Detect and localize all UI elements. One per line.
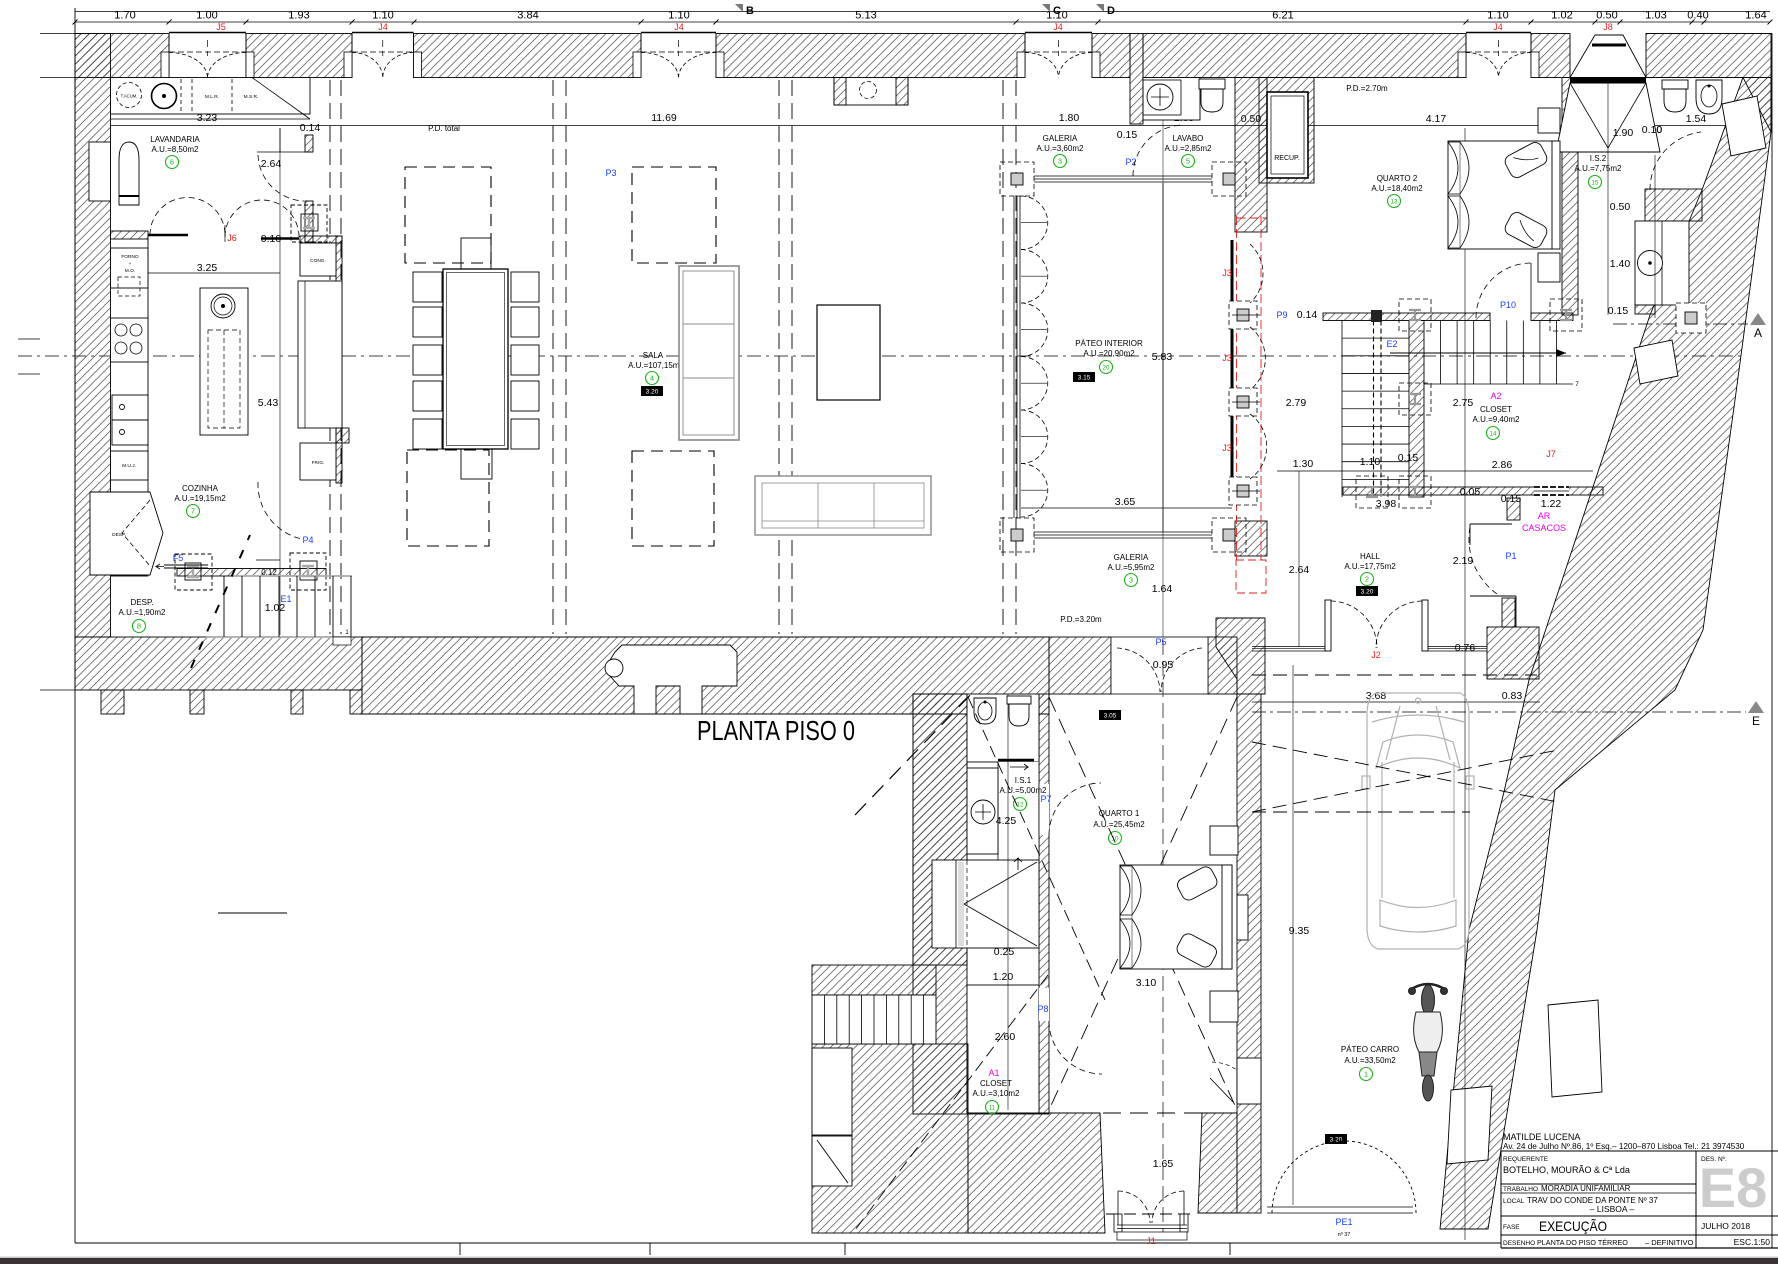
svg-text:HALL: HALL: [1360, 552, 1381, 561]
svg-text:C: C: [1053, 5, 1061, 17]
svg-text:ESC.1:50: ESC.1:50: [1734, 1237, 1771, 1247]
svg-text:M.U.J.: M.U.J.: [122, 463, 136, 469]
svg-text:M.S.R.: M.S.R.: [244, 94, 259, 100]
svg-text:3.20: 3.20: [646, 389, 659, 396]
svg-text:3.20: 3.20: [1330, 1137, 1343, 1144]
svg-text:5.13: 5.13: [855, 10, 876, 22]
svg-text:T.ACUM.: T.ACUM.: [121, 94, 138, 99]
svg-text:CLOSET: CLOSET: [980, 1079, 1012, 1088]
svg-text:I.S.1: I.S.1: [1015, 776, 1032, 785]
svg-text:3: 3: [1058, 156, 1062, 165]
svg-text:2.75: 2.75: [1453, 397, 1474, 409]
svg-text:0.50: 0.50: [1596, 10, 1617, 22]
svg-text:P5: P5: [1155, 637, 1166, 647]
svg-text:MORADIA UNIFAMILIAR: MORADIA UNIFAMILIAR: [1541, 1184, 1631, 1193]
svg-text:1.10: 1.10: [668, 10, 689, 22]
svg-text:CLOSET: CLOSET: [1480, 405, 1512, 414]
svg-text:J2: J2: [1371, 650, 1381, 660]
svg-text:+: +: [129, 262, 132, 267]
svg-text:LAVANDARIA: LAVANDARIA: [150, 135, 200, 144]
svg-text:PLANTA DO PISO TÉRREO: PLANTA DO PISO TÉRREO: [1537, 1238, 1628, 1247]
svg-text:2.79: 2.79: [1286, 397, 1307, 409]
svg-text:0.15: 0.15: [1398, 452, 1419, 464]
svg-text:A.U.=17,75m2: A.U.=17,75m2: [1344, 562, 1396, 571]
svg-text:0.15: 0.15: [1608, 305, 1629, 317]
svg-text:PE1: PE1: [1335, 1217, 1352, 1227]
svg-text:0.14: 0.14: [1297, 309, 1318, 321]
svg-text:COZINHA: COZINHA: [182, 484, 219, 493]
svg-text:FRIG.: FRIG.: [312, 460, 325, 466]
svg-text:3.15: 3.15: [1078, 375, 1091, 382]
svg-text:6.21: 6.21: [1272, 10, 1293, 22]
svg-text:– DEFINITIVO: – DEFINITIVO: [1645, 1238, 1694, 1247]
svg-text:2.19: 2.19: [1453, 555, 1474, 567]
svg-text:J8: J8: [1603, 22, 1613, 32]
svg-text:P4: P4: [302, 535, 313, 545]
svg-text:QUARTO 1: QUARTO 1: [1099, 809, 1140, 818]
svg-text:P8: P8: [1037, 1004, 1048, 1014]
svg-text:14: 14: [1490, 430, 1497, 437]
svg-text:3.05: 3.05: [1104, 713, 1117, 720]
svg-text:A.U.=7,75m2: A.U.=7,75m2: [1575, 164, 1622, 173]
svg-text:BOTELHO, MOURÃO & Cª Lda: BOTELHO, MOURÃO & Cª Lda: [1503, 1165, 1630, 1175]
svg-text:1.30: 1.30: [1293, 458, 1314, 470]
svg-text:3.98: 3.98: [1376, 498, 1397, 510]
svg-text:1.40: 1.40: [1610, 258, 1631, 270]
svg-text:20: 20: [1103, 364, 1110, 371]
svg-text:CASACOS: CASACOS: [1522, 523, 1566, 533]
svg-text:2.64: 2.64: [261, 158, 282, 170]
svg-text:15: 15: [1592, 179, 1599, 186]
svg-text:LOCAL: LOCAL: [1503, 1198, 1525, 1205]
svg-text:1.54: 1.54: [1686, 113, 1707, 125]
svg-text:J4: J4: [1053, 22, 1063, 32]
svg-text:MATILDE LUCENA: MATILDE LUCENA: [1503, 1132, 1580, 1142]
svg-text:DESP.: DESP.: [112, 532, 126, 538]
svg-text:E2: E2: [1386, 339, 1397, 349]
svg-text:2.64: 2.64: [1289, 564, 1310, 576]
svg-text:Av. 24 de Julho Nº.86, 1º Esq.: Av. 24 de Julho Nº.86, 1º Esq.– 1200–870…: [1503, 1142, 1745, 1151]
svg-text:1.10: 1.10: [1360, 456, 1381, 468]
svg-text:1.03: 1.03: [1645, 10, 1666, 22]
svg-text:SALA: SALA: [643, 351, 664, 360]
svg-text:E8: E8: [1699, 1156, 1768, 1219]
svg-text:1.02: 1.02: [265, 602, 286, 614]
svg-text:EXECUÇÃO: EXECUÇÃO: [1539, 1218, 1607, 1234]
svg-text:A.U.=18,40m2: A.U.=18,40m2: [1371, 184, 1423, 193]
svg-text:GALERIA: GALERIA: [1043, 134, 1078, 143]
svg-text:P1: P1: [1505, 551, 1516, 561]
svg-text:CONG.: CONG.: [310, 258, 326, 264]
svg-text:A: A: [1754, 326, 1762, 340]
svg-text:nº 37: nº 37: [1338, 1231, 1351, 1238]
svg-text:5: 5: [1186, 156, 1190, 165]
svg-text:1.90: 1.90: [1613, 127, 1634, 139]
svg-text:A.U.=107,15m2: A.U.=107,15m2: [628, 361, 684, 370]
svg-text:0.15: 0.15: [1501, 493, 1522, 505]
svg-text:1.80: 1.80: [1059, 112, 1080, 124]
svg-text:3.84: 3.84: [517, 10, 538, 22]
svg-text:P10: P10: [1500, 300, 1516, 310]
svg-text:A.U.=8,50m2: A.U.=8,50m2: [152, 145, 199, 154]
svg-text:0.14: 0.14: [300, 122, 321, 134]
svg-text:7: 7: [191, 506, 195, 515]
svg-text:A.U.=33,50m2: A.U.=33,50m2: [1344, 1056, 1396, 1065]
svg-text:1.02: 1.02: [1551, 10, 1572, 22]
svg-text:2: 2: [1365, 574, 1369, 583]
svg-text:P.D.=2.70m: P.D.=2.70m: [1346, 84, 1388, 93]
svg-text:A.U.=1,90m2: A.U.=1,90m2: [119, 608, 166, 617]
svg-text:F5: F5: [173, 553, 184, 563]
svg-text:E: E: [1752, 714, 1760, 728]
svg-text:A.U.=3,10m2: A.U.=3,10m2: [973, 1089, 1020, 1098]
svg-text:1: 1: [1364, 1069, 1368, 1078]
svg-text:5.83: 5.83: [1152, 351, 1173, 363]
svg-text:0.05: 0.05: [1460, 486, 1481, 498]
svg-text:DESP.: DESP.: [131, 598, 154, 607]
svg-text:9.35: 9.35: [1289, 925, 1310, 937]
svg-text:A.U.=25,45m2: A.U.=25,45m2: [1093, 820, 1145, 829]
svg-text:J5: J5: [216, 22, 226, 32]
svg-text:D: D: [1107, 5, 1115, 17]
svg-text:J1: J1: [1146, 1236, 1156, 1246]
svg-text:A.U.=20,90m2: A.U.=20,90m2: [1083, 349, 1135, 358]
svg-text:3.10: 3.10: [1136, 977, 1157, 989]
svg-text:7: 7: [1575, 381, 1579, 388]
svg-text:P7: P7: [1040, 794, 1051, 804]
svg-text:P9: P9: [1276, 310, 1287, 320]
svg-text:I.S.2: I.S.2: [1590, 154, 1607, 163]
svg-text:1.00: 1.00: [196, 10, 217, 22]
svg-text:3.20: 3.20: [1361, 589, 1374, 596]
svg-text:1.10: 1.10: [1487, 10, 1508, 22]
svg-text:1.70: 1.70: [114, 10, 135, 22]
svg-text:DESENHO: DESENHO: [1503, 1240, 1535, 1247]
svg-text:0.15: 0.15: [1117, 129, 1138, 141]
svg-text:FORNO: FORNO: [121, 254, 139, 260]
svg-text:GALERIA: GALERIA: [1114, 553, 1149, 562]
svg-text:1.64: 1.64: [1152, 583, 1173, 595]
svg-text:J6: J6: [227, 233, 237, 243]
svg-text:– LISBOA –: – LISBOA –: [1590, 1204, 1635, 1214]
svg-text:0.40: 0.40: [1687, 10, 1708, 22]
svg-text:A1: A1: [988, 1068, 999, 1078]
svg-text:2.86: 2.86: [1492, 459, 1513, 471]
svg-text:4.17: 4.17: [1426, 113, 1447, 125]
svg-text:1.64: 1.64: [1745, 10, 1766, 22]
svg-text:0.50: 0.50: [1610, 201, 1631, 213]
svg-text:A2: A2: [1490, 391, 1501, 401]
svg-text:4: 4: [650, 373, 654, 382]
svg-text:4.25: 4.25: [996, 815, 1017, 827]
svg-text:FASE: FASE: [1503, 1224, 1520, 1231]
svg-text:J3: J3: [1222, 268, 1232, 278]
svg-text:3.65: 3.65: [1115, 496, 1136, 508]
svg-text:0.83: 0.83: [1502, 690, 1523, 702]
svg-text:AR: AR: [1538, 511, 1551, 521]
svg-text:J4: J4: [378, 22, 388, 32]
svg-text:P.D.=3.20m: P.D.=3.20m: [1060, 615, 1102, 624]
svg-text:J3: J3: [1222, 443, 1232, 453]
svg-text:LAVABO: LAVABO: [1173, 134, 1204, 143]
svg-text:REQUERENTE: REQUERENTE: [1503, 1156, 1549, 1163]
svg-text:5.43: 5.43: [258, 397, 279, 409]
svg-text:0.10: 0.10: [261, 233, 282, 245]
svg-text:M.O.: M.O.: [125, 268, 135, 274]
svg-text:J4: J4: [674, 22, 684, 32]
svg-text:PÁTEO INTERIOR: PÁTEO INTERIOR: [1075, 339, 1143, 348]
svg-text:1.93: 1.93: [288, 10, 309, 22]
svg-text:QUARTO 2: QUARTO 2: [1377, 174, 1418, 183]
svg-text:TRABALHO: TRABALHO: [1503, 1186, 1538, 1193]
svg-text:PLANTA PISO 0: PLANTA PISO 0: [697, 715, 855, 746]
svg-text:1.65: 1.65: [1153, 1158, 1174, 1170]
svg-text:J4: J4: [1493, 22, 1503, 32]
svg-text:A.U.=2,85m2: A.U.=2,85m2: [1165, 144, 1212, 153]
svg-text:11: 11: [989, 1104, 996, 1111]
svg-text:0.25: 0.25: [994, 946, 1015, 958]
svg-text:3.25: 3.25: [197, 262, 218, 274]
svg-text:0.10: 0.10: [1642, 124, 1663, 136]
svg-text:6: 6: [170, 157, 174, 166]
svg-text:P3: P3: [605, 168, 616, 178]
svg-text:P.D. total: P.D. total: [428, 124, 460, 133]
svg-text:1.20: 1.20: [993, 971, 1014, 983]
svg-text:M.L.R.: M.L.R.: [205, 94, 219, 100]
svg-text:13: 13: [1391, 198, 1398, 205]
svg-text:J7: J7: [1546, 449, 1556, 459]
svg-text:11.69: 11.69: [651, 112, 677, 124]
svg-text:1.10: 1.10: [372, 10, 393, 22]
svg-text:A.U.=3,60m2: A.U.=3,60m2: [1037, 144, 1084, 153]
svg-text:3: 3: [1129, 575, 1133, 584]
svg-text:JULHO 2018: JULHO 2018: [1701, 1221, 1750, 1231]
svg-text:A.U.=9,40m2: A.U.=9,40m2: [1473, 415, 1520, 424]
svg-text:RECUP.: RECUP.: [1274, 155, 1300, 162]
svg-text:B: B: [746, 5, 754, 17]
svg-text:8: 8: [137, 621, 141, 630]
svg-text:A.U.=19,15m2: A.U.=19,15m2: [174, 494, 226, 503]
svg-text:12: 12: [1017, 801, 1024, 808]
svg-text:1.22: 1.22: [1541, 498, 1562, 510]
svg-text:PÁTEO CARRO: PÁTEO CARRO: [1341, 1045, 1399, 1054]
svg-text:J3: J3: [1222, 353, 1232, 363]
svg-text:A.U.=5,95m2: A.U.=5,95m2: [1108, 563, 1155, 572]
